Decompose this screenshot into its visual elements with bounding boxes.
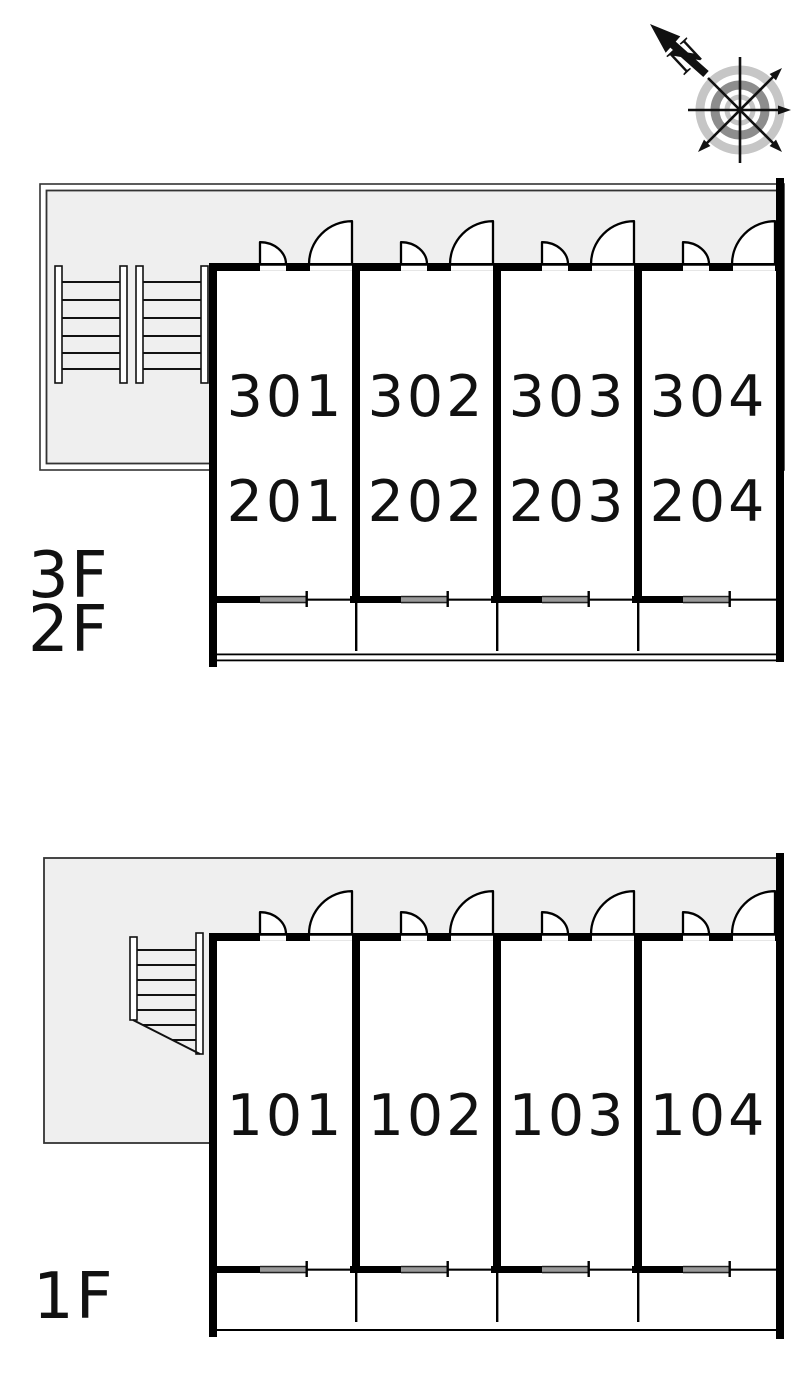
balcony-edge [213, 654, 784, 656]
wall-partition [634, 933, 642, 1273]
wall-left [209, 263, 217, 667]
wall-partition [352, 933, 360, 1273]
terrace-edge [213, 1329, 784, 1331]
terrace-divider [637, 1273, 639, 1322]
compass-rose: N [650, 24, 791, 163]
wall-partition [634, 263, 642, 603]
unit-label-203: 203 [509, 469, 627, 535]
unit-label-201: 201 [227, 469, 345, 535]
balcony-divider [496, 603, 498, 651]
terrace-divider [355, 1273, 357, 1322]
plan-first-floor: 101 102 103 104 1F [33, 853, 784, 1345]
wall-partition [352, 263, 360, 603]
plan-upper-floors: 301 302 303 304 201 202 203 204 3F 2F [28, 178, 784, 673]
floor-label-2f: 2F [28, 593, 110, 667]
unit-label-304: 304 [650, 364, 768, 430]
unit-label-303: 303 [509, 364, 627, 430]
wall-partition [493, 263, 501, 603]
floor-plan-drawing: N [0, 0, 800, 1381]
floor-label-1f: 1F [33, 1260, 115, 1334]
unit-label-104: 104 [650, 1083, 768, 1149]
wall-right [776, 178, 784, 662]
balcony-divider [355, 603, 357, 651]
unit-label-103: 103 [509, 1083, 627, 1149]
unit-label-101: 101 [227, 1083, 345, 1149]
wall-partition [493, 933, 501, 1273]
wall-right [776, 853, 784, 1339]
unit-label-302: 302 [368, 364, 486, 430]
unit-label-202: 202 [368, 469, 486, 535]
unit-label-102: 102 [368, 1083, 486, 1149]
balcony-divider [637, 603, 639, 651]
unit-label-301: 301 [227, 364, 345, 430]
balcony-edge [213, 660, 784, 662]
wall-left [209, 933, 217, 1337]
terrace-divider [496, 1273, 498, 1322]
unit-label-204: 204 [650, 469, 768, 535]
floor-plan-page: N [0, 0, 800, 1381]
